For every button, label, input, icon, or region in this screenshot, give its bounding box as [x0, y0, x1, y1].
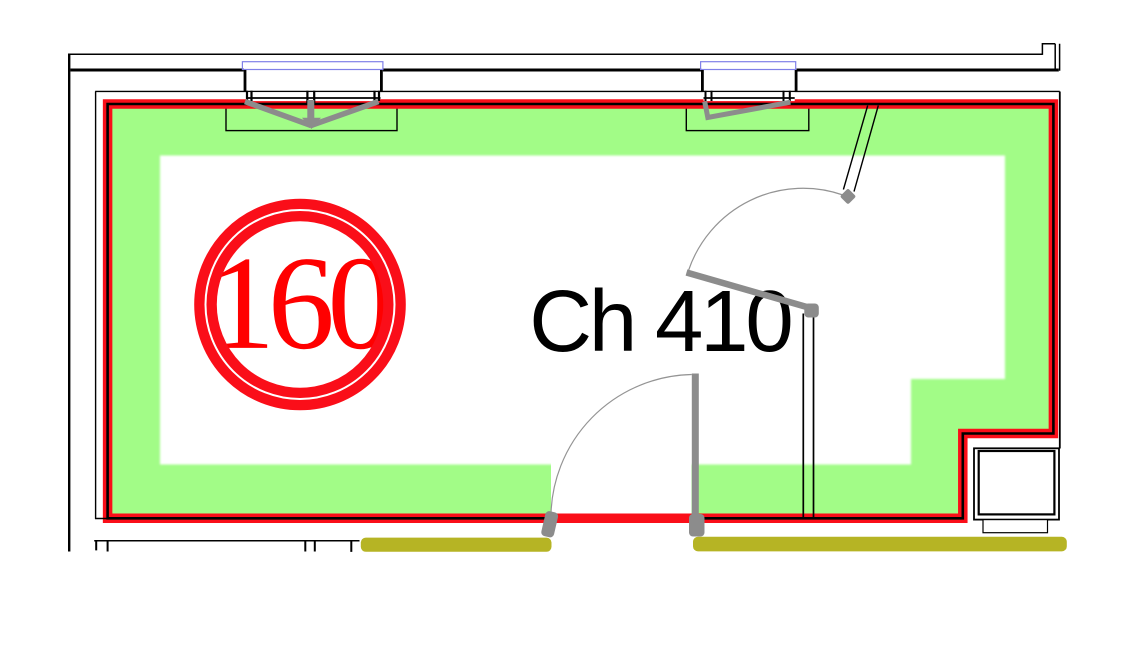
- svg-text:Ch 410: Ch 410: [529, 273, 790, 370]
